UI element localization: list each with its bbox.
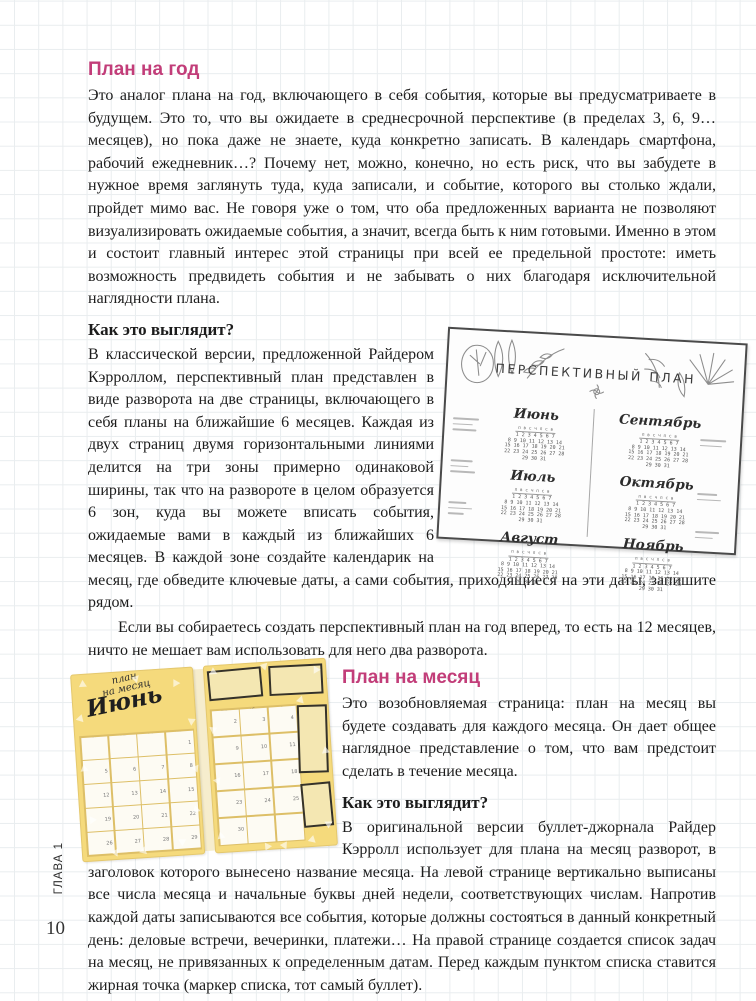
calendar-cell: 9 <box>213 736 242 763</box>
calendar-cell: 17 <box>243 762 272 789</box>
chapter-label: ГЛАВА 1 <box>53 842 65 894</box>
calendar-cell <box>247 816 276 843</box>
handwritten-note <box>448 497 481 519</box>
handwritten-note <box>450 455 483 477</box>
date-number: 13 <box>131 783 139 806</box>
mini-calendar: п в с ч п с в1 2 3 4 5 6 78 9 10 11 12 1… <box>475 423 595 465</box>
calendar-cell: 1 <box>166 730 194 754</box>
month-block: Август п в с ч п с в1 2 3 4 5 6 78 9 10 … <box>468 525 589 590</box>
date-number: 11 <box>289 734 297 757</box>
date-number: 24 <box>264 790 272 813</box>
mini-calendar: п в с ч п с в1 2 3 4 5 6 78 9 10 11 12 1… <box>468 547 588 589</box>
month-name: Октябрь <box>619 474 694 494</box>
date-number: 17 <box>262 763 270 786</box>
confetti-triangle <box>76 715 87 726</box>
confetti-triangle <box>78 680 86 688</box>
date-number: 30 <box>237 819 245 842</box>
spread-page-right: птсбвс 2349101116171823242530 <box>203 658 338 854</box>
calendar-cell: 21 <box>142 804 170 828</box>
month-name: Ноябрь <box>623 536 684 555</box>
date-number: 23 <box>235 792 243 815</box>
month-name: Июль <box>510 468 556 486</box>
calendar-cell: 7 <box>139 756 167 780</box>
month-block: Июль п в с ч п с в1 2 3 4 5 6 78 9 10 11… <box>471 463 592 528</box>
page-number: 10 <box>46 918 65 940</box>
calendar-cell: 15 <box>169 778 197 802</box>
calendar-cell: 10 <box>241 735 270 762</box>
date-number: 14 <box>159 781 167 804</box>
calendar-cell: 12 <box>84 784 112 808</box>
perspective-plan-illustration: ПЕРСПЕКТИВНЫЙ ПЛАН Июнь п в с ч п с в1 2… <box>442 335 742 547</box>
month-name: Август <box>500 529 559 548</box>
date-number: 12 <box>102 785 110 808</box>
date-number: 29 <box>191 827 199 850</box>
calendar-cell: 25 <box>274 787 303 814</box>
sketch-box-tall <box>297 705 329 774</box>
book-page: План на год Это аналог плана на год, вкл… <box>0 0 756 1001</box>
calendar-cell: 24 <box>245 789 274 816</box>
calendar-cell: 13 <box>112 782 140 806</box>
notebook-left-page: Июнь п в с ч п с в1 2 3 4 5 6 78 9 10 11… <box>468 401 596 594</box>
spread-page-left: планна месяц Июнь пнвтсрчт 1567812131415… <box>70 667 205 863</box>
date-number: 15 <box>187 779 195 802</box>
calendar-cell: 14 <box>141 780 169 804</box>
calendar-cell <box>137 732 165 756</box>
calendar-cell: 3 <box>240 707 269 734</box>
confetti-triangle <box>187 719 195 727</box>
confetti-triangle <box>173 679 180 687</box>
calendar-cell: 29 <box>172 826 200 850</box>
handwritten-note <box>695 527 728 544</box>
calendar-cell <box>275 814 304 841</box>
month-title: Июнь <box>85 684 165 722</box>
confetti-triangle <box>314 666 321 674</box>
calendar-cell <box>109 734 137 758</box>
date-number: 10 <box>260 736 268 759</box>
paragraph-plan-year: Это аналог плана на год, включающего в с… <box>88 85 716 311</box>
calendar-cell: 4 <box>268 706 297 733</box>
june-right-grid: 2349101116171823242530 <box>210 704 306 846</box>
date-number: 9 <box>235 738 240 761</box>
handwritten-note <box>700 435 733 452</box>
date-number: 21 <box>161 805 169 828</box>
month-name: Июнь <box>513 406 559 424</box>
date-number: 25 <box>292 788 300 811</box>
month-block: Июнь п в с ч п с в1 2 3 4 5 6 78 9 10 11… <box>475 401 596 466</box>
date-number: 5 <box>104 761 109 784</box>
month-name: Сентябрь <box>619 411 702 432</box>
date-number: 2 <box>233 711 238 734</box>
date-number: 16 <box>234 765 242 788</box>
date-number: 18 <box>290 761 298 784</box>
calendar-cell: 23 <box>217 790 246 817</box>
confetti-triangle <box>209 667 217 675</box>
date-number: 4 <box>290 707 295 730</box>
calendar-cell: 20 <box>114 806 142 830</box>
section-heading-plan-year: План на год <box>88 58 716 82</box>
mini-calendar: п в с ч п с в1 2 3 4 5 6 78 9 10 11 12 1… <box>471 485 591 527</box>
confetti-triangle <box>280 842 290 852</box>
calendar-cell <box>81 736 109 760</box>
date-number: 6 <box>132 759 137 782</box>
handwritten-note <box>697 489 730 506</box>
date-number: 20 <box>132 807 140 830</box>
date-number: 7 <box>161 757 166 780</box>
date-number: 19 <box>104 809 112 832</box>
paragraph-two-spreads-note: Если вы собираетесь создать перспективны… <box>88 617 716 662</box>
date-number: 28 <box>162 829 170 852</box>
calendar-cell: 11 <box>270 733 299 760</box>
calendar-cell: 18 <box>272 760 301 787</box>
june-spread: планна месяц Июнь пнвтсрчт 1567812131415… <box>70 658 338 863</box>
confetti-triangle <box>190 764 198 773</box>
handwritten-note <box>452 413 485 435</box>
calendar-cell: 6 <box>111 758 139 782</box>
confetti-triangle <box>212 777 220 786</box>
month-spread-illustration: планна месяц Июнь пнвтсрчт 1567812131415… <box>76 666 332 854</box>
date-number: 3 <box>262 709 267 732</box>
confetti-triangle <box>308 834 317 843</box>
date-number: 1 <box>187 732 192 755</box>
mini-calendar: п в с ч п с в1 2 3 4 5 6 78 9 10 11 12 1… <box>592 554 712 596</box>
confetti-triangle <box>209 727 217 735</box>
notebook-spread: ПЕРСПЕКТИВНЫЙ ПЛАН Июнь п в с ч п с в1 2… <box>436 327 747 555</box>
page-content: План на год Это аналог плана на год, вкл… <box>88 58 716 999</box>
